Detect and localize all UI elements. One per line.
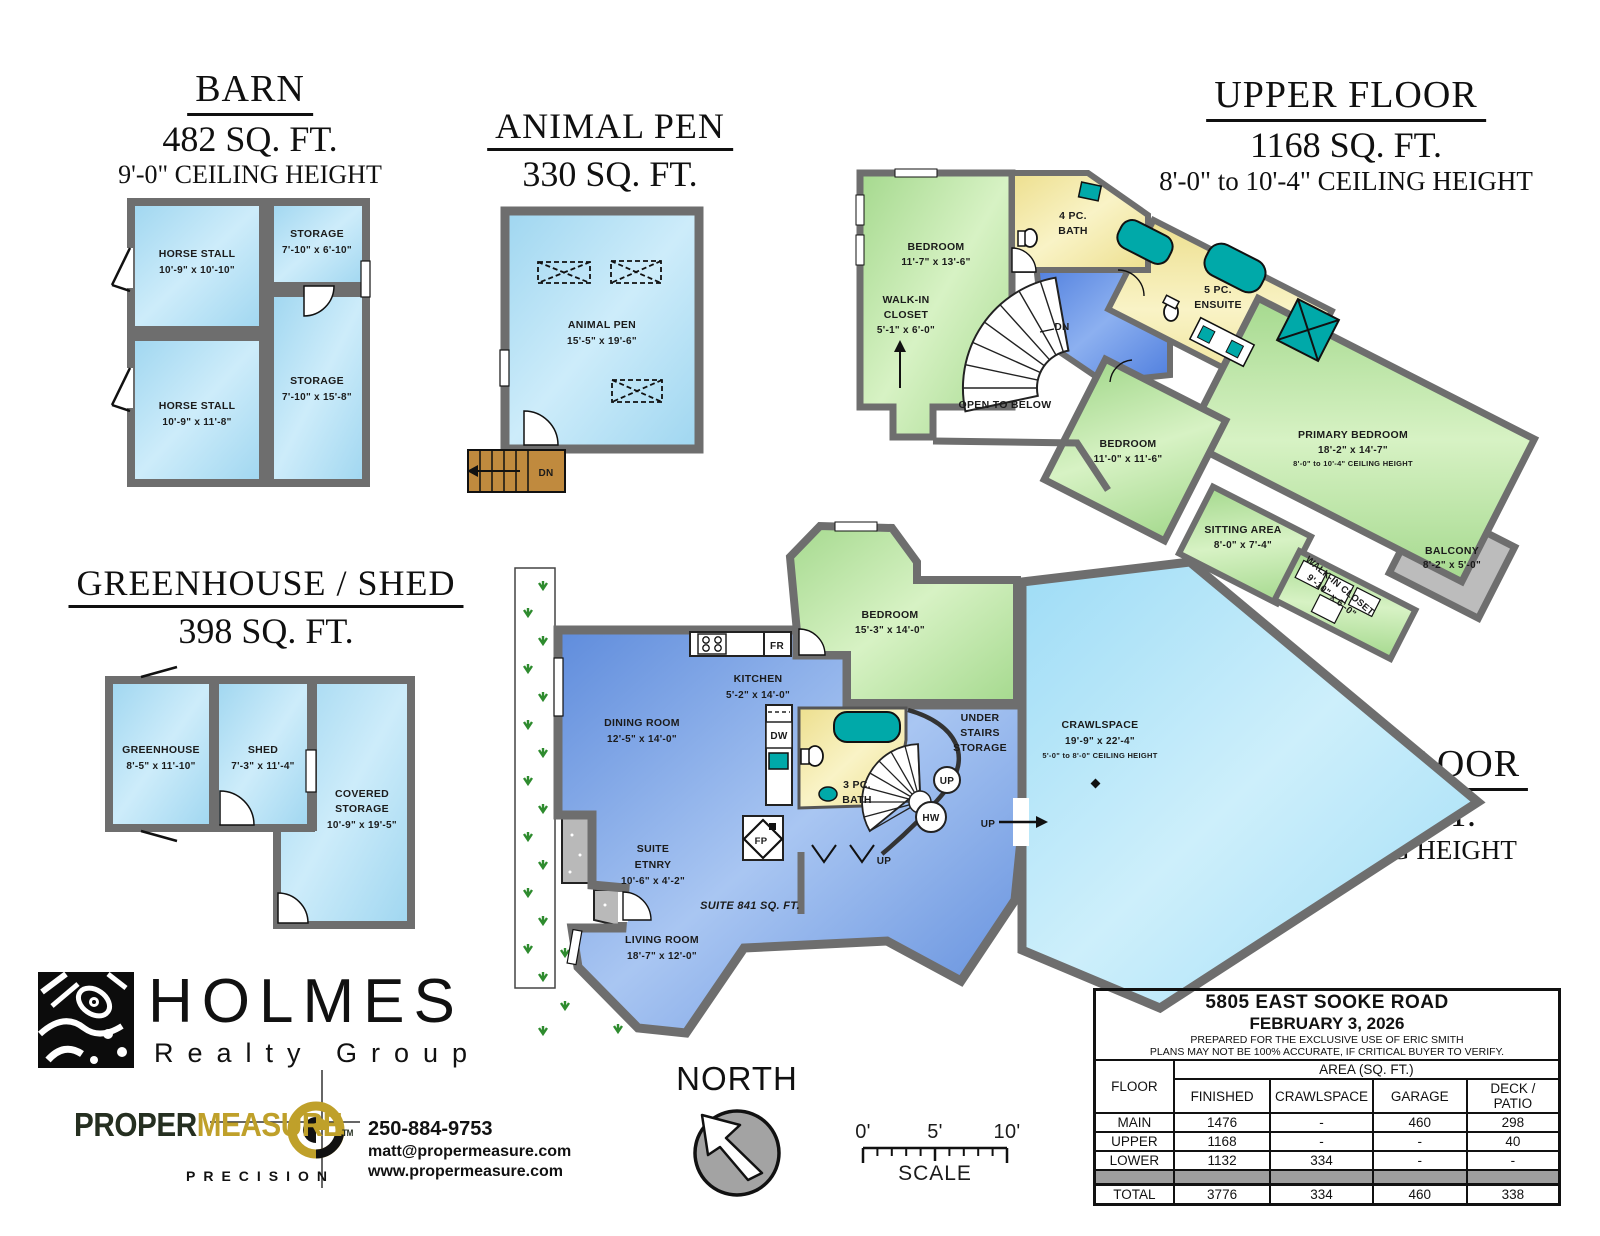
row-lower-garage: - <box>1373 1151 1467 1170</box>
table-row: MAIN 1476 - 460 298 <box>1095 1113 1560 1132</box>
col-finished: FINISHED <box>1174 1079 1271 1113</box>
greenhouse-label: GREENHOUSE <box>122 744 200 756</box>
row-upper-floor: UPPER <box>1095 1132 1174 1151</box>
plan-date: FEBRUARY 3, 2026 <box>1098 1014 1556 1034</box>
animal-pen-plan: DN ANIMAL PEN 15'-5" x 19'-6" <box>462 200 712 500</box>
greenhouse-area: 398 SQ. FT. <box>68 613 463 650</box>
entry-l2: ETNRY <box>635 859 672 871</box>
total-row: TOTAL 3776 334 460 338 <box>1095 1185 1560 1205</box>
fp-label: FP <box>755 836 768 847</box>
upper-walkin1-dims: 5'-1" x 6'-0" <box>877 325 935 336</box>
under-stairs-l2: STAIRS <box>960 727 1000 739</box>
shed-dims: 7'-3" x 11'-4" <box>231 761 294 772</box>
upper-bath-l2: BATH <box>1058 225 1088 237</box>
total-label: TOTAL <box>1095 1185 1174 1205</box>
dining-dims: 12'-5" x 14'-0" <box>607 734 677 745</box>
pen-window-icon <box>500 350 509 386</box>
row-upper-crawlspace: - <box>1270 1132 1372 1151</box>
contact-website: www.propermeasure.com <box>368 1162 571 1182</box>
barn-door-gap-2 <box>124 368 133 408</box>
animal-pen-area: 330 SQ. FT. <box>487 156 733 193</box>
floor-plan-sheet: BARN 482 SQ. FT. 9'-0" CEILING HEIGHT AN… <box>0 0 1600 1236</box>
upper-primary-label: PRIMARY BEDROOM <box>1298 429 1408 441</box>
barn-storage-2-label: STORAGE <box>290 375 344 387</box>
kitchen-label: KITCHEN <box>734 673 783 685</box>
lower-bath-sink-icon <box>819 787 837 801</box>
upper-bedroom2-label: BEDROOM <box>1100 438 1157 450</box>
suite-area-label: SUITE 841 SQ. FT. <box>700 900 800 912</box>
crawlspace-label: CRAWLSPACE <box>1062 719 1139 731</box>
row-upper-garage: - <box>1373 1132 1467 1151</box>
barn-ceiling: 9'-0" CEILING HEIGHT <box>118 161 382 188</box>
lower-bedroom-window-icon <box>835 522 877 531</box>
crawl-up-label: UP <box>981 819 996 830</box>
contact-email: matt@propermeasure.com <box>368 1142 571 1162</box>
barn-storage-2-dims: 7'-10" x 15'-8" <box>282 392 352 403</box>
holmes-name: HOLMES <box>148 966 464 1037</box>
kitchen-sink-icon <box>769 753 788 769</box>
crawlspace-ceiling: 5'-0" to 8'-0" CEILING HEIGHT <box>1042 751 1157 760</box>
upper-bedroom2-dims: 11'-0" x 11'-6" <box>1094 454 1163 465</box>
scale-tick-0: 0' <box>855 1121 871 1143</box>
upper-floor-title: UPPER FLOOR <box>1206 76 1485 122</box>
col-garage: GARAGE <box>1373 1079 1467 1113</box>
dining-label: DINING ROOM <box>604 717 680 729</box>
col-deck-patio: DECK / PATIO <box>1467 1079 1560 1113</box>
animal-pen-title-block: ANIMAL PEN 330 SQ. FT. <box>487 108 733 194</box>
holmes-subtitle: Realty Group <box>154 1038 481 1069</box>
property-address: 5805 EAST SOOKE ROAD <box>1098 992 1556 1014</box>
row-main-garage: 460 <box>1373 1113 1467 1132</box>
upper-floor-area: 1168 SQ. FT. <box>1159 127 1533 164</box>
shed-label: SHED <box>248 744 278 756</box>
barn-horse-stall-2-dims: 10'-9" x 11'-8" <box>162 417 231 428</box>
barn-door-gap-1 <box>124 248 133 288</box>
row-lower-crawlspace: 334 <box>1270 1151 1372 1170</box>
scale-tick-10: 10' <box>994 1121 1021 1143</box>
crawlspace-room <box>1022 562 1478 1008</box>
upper-bath-sink-icon <box>1079 182 1102 201</box>
barn-window-icon <box>361 261 370 297</box>
row-upper-deck: 40 <box>1467 1132 1560 1151</box>
pm-measure: MEASURE <box>197 1106 342 1143</box>
barn-horse-stall-2-label: HORSE STALL <box>159 400 236 412</box>
upper-bath-toilet-icon <box>1018 229 1037 247</box>
pm-proper: PROPER <box>74 1106 197 1143</box>
crawlspace-dims: 19'-9" x 22'-4" <box>1065 736 1135 747</box>
stove-icon <box>698 634 726 654</box>
barn-horse-stall-1-label: HORSE STALL <box>159 248 236 260</box>
row-main-deck: 298 <box>1467 1113 1560 1132</box>
barn-plan: HORSE STALL 10'-9" x 10'-10" STORAGE 7'-… <box>118 193 378 493</box>
area-summary-table: 5805 EAST SOOKE ROAD FEBRUARY 3, 2026 PR… <box>1093 988 1561 1206</box>
up-circle-label: UP <box>940 776 955 787</box>
row-lower-finished: 1132 <box>1174 1151 1271 1170</box>
table-row: LOWER 1132 334 - - <box>1095 1151 1560 1170</box>
upper-primary-dims: 18'-2" x 14'-7" <box>1318 445 1388 456</box>
under-stairs-l1: UNDER <box>961 712 1000 724</box>
row-upper-finished: 1168 <box>1174 1132 1271 1151</box>
lower-bedroom-label: BEDROOM <box>862 609 919 621</box>
pm-tm: TM <box>342 1128 353 1138</box>
greenhouse-dims: 8'-5" x 11'-10" <box>126 761 195 772</box>
stairs-up-label: UP <box>877 856 892 867</box>
living-dims: 18'-7" x 12'-0" <box>627 951 697 962</box>
lower-bath-toilet-icon <box>801 746 823 766</box>
barn-storage-1-dims: 7'-10" x 6'-10" <box>282 245 352 256</box>
barn-storage-1-room <box>270 202 366 286</box>
total-garage: 460 <box>1373 1185 1467 1205</box>
lower-bath-l1: 3 PC. <box>843 779 871 791</box>
barn-title: BARN <box>187 70 313 116</box>
prepared-for: PREPARED FOR THE EXCLUSIVE USE OF ERIC S… <box>1098 1034 1556 1046</box>
table-title-cell: 5805 EAST SOOKE ROAD FEBRUARY 3, 2026 PR… <box>1095 990 1560 1061</box>
upper-bath-l1: 4 PC. <box>1059 210 1087 222</box>
north-label: NORTH <box>676 1060 798 1098</box>
lower-bath-l2: BATH <box>842 794 872 806</box>
covered-storage-dims: 10'-9" x 19'-5" <box>327 820 397 831</box>
barn-horse-stall-1-dims: 10'-9" x 10'-10" <box>159 265 235 276</box>
scale-tick-5: 5' <box>927 1121 943 1143</box>
row-main-floor: MAIN <box>1095 1113 1174 1132</box>
contact-block: 250-884-9753 matt@propermeasure.com www.… <box>368 1117 571 1182</box>
spacer-row <box>1095 1170 1560 1185</box>
area-column-header: AREA (SQ. FT.) <box>1174 1060 1560 1079</box>
covered-storage-l2: STORAGE <box>335 803 389 815</box>
holmes-logo-icon <box>38 972 134 1068</box>
hw-label: HW <box>922 813 940 824</box>
entry-l1: SUITE <box>637 843 669 855</box>
lower-floor-plan: UP HW UP FP BEDROOM 15'-3" x 14'-0" KITC… <box>510 500 1520 1045</box>
upper-dn-label: DN <box>1054 322 1069 333</box>
kitchen-dims: 5'-2" x 14'-0" <box>726 690 790 701</box>
floor-column-header: FLOOR <box>1095 1060 1174 1113</box>
upper-window-left1-icon <box>856 195 864 225</box>
fr-label: FR <box>770 641 784 652</box>
propermeasure-wordmark: PROPERMEASURETM <box>74 1106 353 1144</box>
row-lower-floor: LOWER <box>1095 1151 1174 1170</box>
table-row: UPPER 1168 - - 40 <box>1095 1132 1560 1151</box>
upper-bedroom1-label: BEDROOM <box>908 241 965 253</box>
living-label: LIVING ROOM <box>625 934 699 946</box>
upper-ensuite-l2: ENSUITE <box>1194 299 1242 311</box>
upper-window-top-icon <box>895 169 937 177</box>
shed-window-icon <box>306 750 316 792</box>
barn-title-block: BARN 482 SQ. FT. 9'-0" CEILING HEIGHT <box>118 70 382 188</box>
row-lower-deck: - <box>1467 1151 1560 1170</box>
row-main-crawlspace: - <box>1270 1113 1372 1132</box>
north-compass-icon <box>690 1105 785 1200</box>
row-main-finished: 1476 <box>1174 1113 1271 1132</box>
upper-walkin1-l2: CLOSET <box>884 309 929 321</box>
total-deck: 338 <box>1467 1185 1560 1205</box>
greenhouse-title-block: GREENHOUSE / SHED 398 SQ. FT. <box>68 565 463 651</box>
covered-storage-l1: COVERED <box>335 788 389 800</box>
barn-storage-1-label: STORAGE <box>290 228 344 240</box>
under-stairs-l3: STORAGE <box>953 742 1007 754</box>
lower-bedroom-dims: 15'-3" x 14'-0" <box>855 625 925 636</box>
upper-window-left2-icon <box>856 235 864 265</box>
landscaping-strip <box>515 568 555 988</box>
greenhouse-title: GREENHOUSE / SHED <box>68 565 463 608</box>
col-crawlspace: CRAWLSPACE <box>1270 1079 1372 1113</box>
lower-bath-tub-icon <box>834 712 900 742</box>
upper-open-below-label: OPEN TO BELOW <box>959 399 1052 411</box>
entry-dims: 10'-6" x 4'-2" <box>621 876 685 887</box>
total-finished: 3776 <box>1174 1185 1271 1205</box>
dining-window-icon <box>554 658 563 716</box>
barn-area: 482 SQ. FT. <box>118 121 382 158</box>
upper-walkin1-l1: WALK-IN <box>882 294 929 306</box>
pen-dn-label: DN <box>538 468 553 479</box>
upper-bedroom1-dims: 11'-7" x 13'-6" <box>901 257 970 268</box>
pen-room-label: ANIMAL PEN <box>568 319 636 331</box>
scale-label: SCALE <box>898 1162 972 1185</box>
upper-primary-ceiling: 8'-0" to 10'-4" CEILING HEIGHT <box>1293 459 1413 468</box>
upper-ensuite-l1: 5 PC. <box>1204 284 1232 296</box>
total-crawlspace: 334 <box>1270 1185 1372 1205</box>
contact-phone: 250-884-9753 <box>368 1117 571 1142</box>
disclaimer: PLANS MAY NOT BE 100% ACCURATE, IF CRITI… <box>1098 1046 1556 1058</box>
dw-label: DW <box>770 731 788 742</box>
scale-bar: 0' 5' 10' SCALE <box>845 1118 1025 1182</box>
pm-precision: PRECISION <box>186 1168 335 1184</box>
barn-storage-2-room <box>270 293 366 483</box>
pen-room-dims: 15'-5" x 19'-6" <box>567 336 637 347</box>
greenhouse-shed-plan: GREENHOUSE 8'-5" x 11'-10" SHED 7'-3" x … <box>95 655 425 945</box>
animal-pen-title: ANIMAL PEN <box>487 108 733 151</box>
